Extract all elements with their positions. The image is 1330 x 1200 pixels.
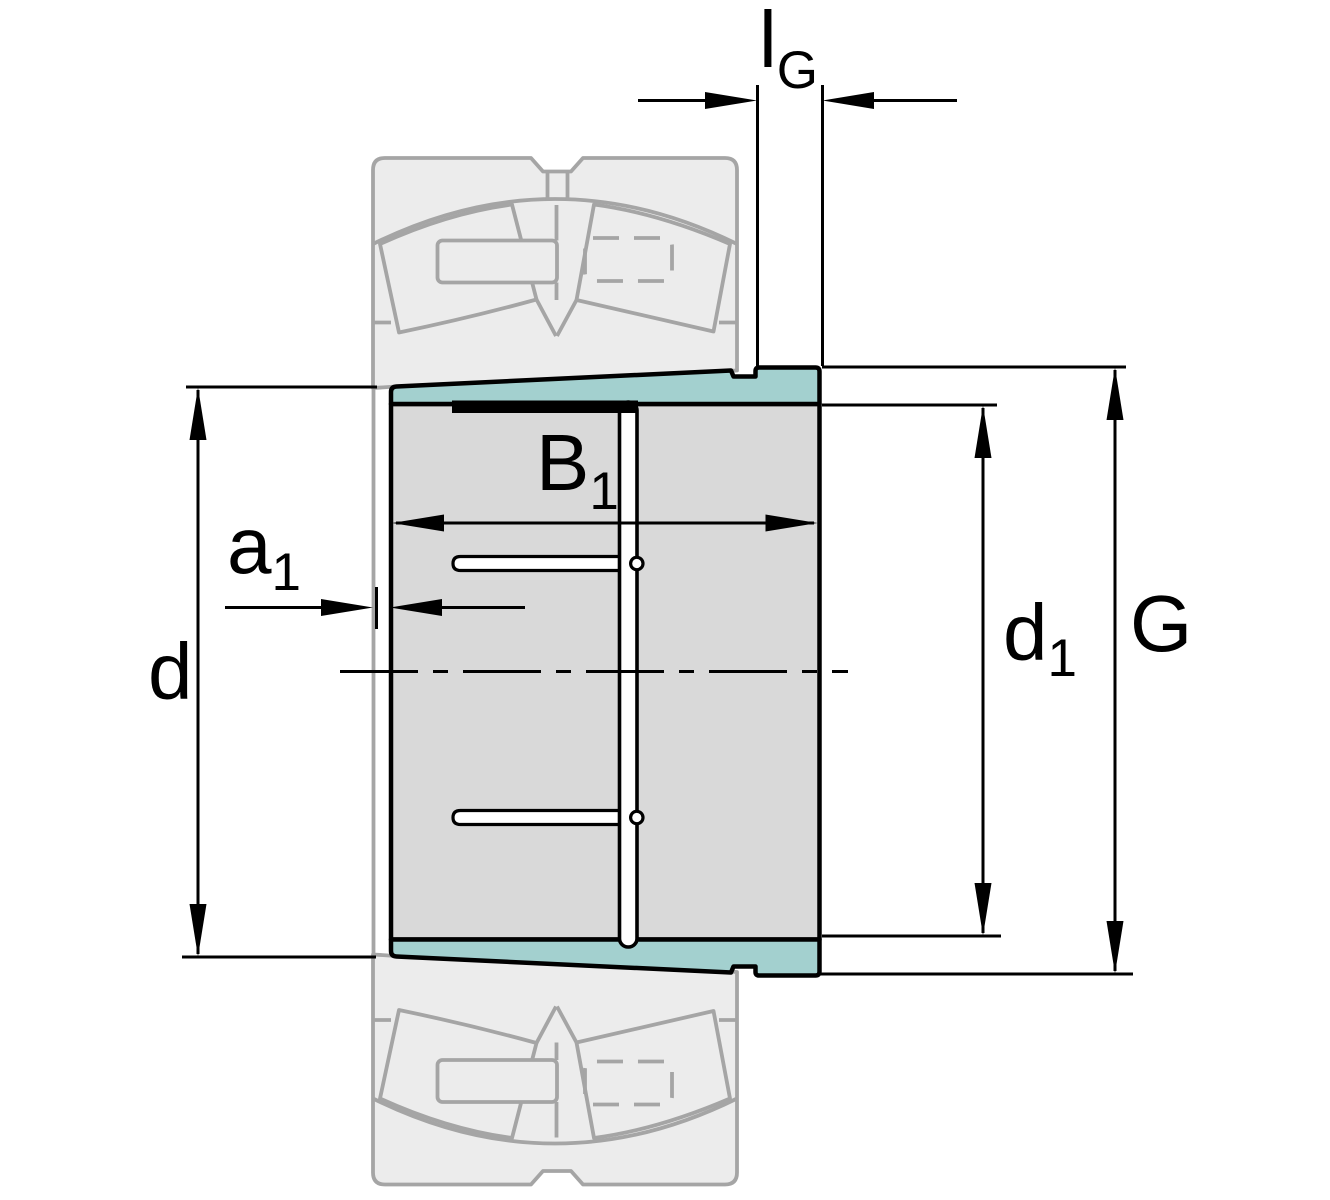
technical-drawing-canvas: d a1 B1 lG d1 G [0, 0, 1330, 1200]
dimension-label-g: G [1130, 579, 1192, 668]
sleeve-slit-end-hole-lower [631, 811, 643, 823]
arrowhead-down [190, 904, 207, 957]
arrowhead-left [823, 92, 875, 109]
arrowhead-down [1107, 921, 1124, 974]
dimension-d1 [822, 405, 1001, 936]
sleeve-slot-upper [453, 557, 624, 571]
dimension-label-a1: a1 [227, 501, 301, 602]
arrowhead-up [190, 388, 207, 441]
dimension-label-d1: d1 [1003, 588, 1077, 688]
dimension-label-d: d [148, 627, 193, 716]
bearing-ghost-top [373, 158, 737, 388]
sleeve-split-slit [620, 402, 638, 947]
arrowhead-up [1107, 368, 1124, 421]
dimension-g [820, 367, 1133, 974]
bearing-ghost-bottom-shape [373, 955, 737, 1185]
bearing-ghost-bottom [373, 955, 737, 1185]
arrowhead-right [705, 92, 757, 109]
sleeve-slit-end-hole-upper [631, 557, 643, 569]
sleeve-bore-edge-thick [452, 401, 638, 414]
dimension-label-lg: lG [759, 0, 818, 100]
arrowhead-up [975, 406, 992, 459]
adapter-sleeve-drawing: d a1 B1 lG d1 G [0, 0, 1330, 1200]
bearing-ghost-top-shape [373, 158, 737, 388]
sleeve-slot-lower [453, 811, 624, 825]
arrowhead-right [321, 599, 373, 616]
arrowhead-down [975, 883, 992, 936]
